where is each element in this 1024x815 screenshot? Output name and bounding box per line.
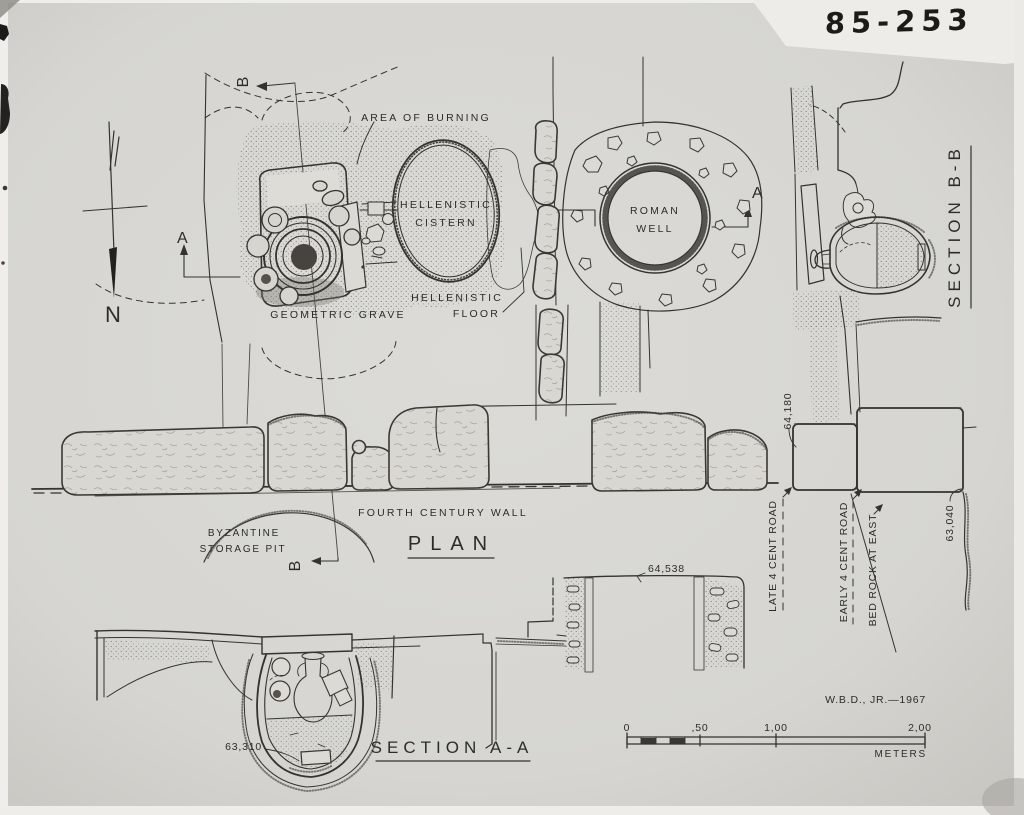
pit-label-1: BYZANTINE [208, 528, 280, 539]
aa-elevation-base: 63,310 [225, 741, 262, 753]
svg-text:B: B [235, 77, 252, 88]
paper [8, 3, 1016, 806]
north-label: N [105, 302, 121, 327]
scale-tick-100: 1,00 [764, 722, 788, 734]
bb-early-road-label: EARLY 4 CENT ROAD [838, 502, 850, 622]
film-speck [1, 261, 5, 265]
archaeological-drawing-photo: 85-253 N [0, 0, 1024, 815]
right-margin [1014, 0, 1024, 815]
scale-unit: METERS [875, 749, 927, 760]
cistern-label-1: HELLENISTIC [400, 199, 492, 211]
bb-earth-band [808, 300, 840, 423]
scale-tick-200: 2,00 [908, 722, 932, 734]
bb-elevation-bedrock: 63,040 [944, 505, 956, 542]
film-speck [3, 186, 8, 191]
svg-text:B: B [287, 561, 304, 572]
floor-label-1: HELLENISTIC [411, 292, 503, 304]
svg-text:SECTION B-B: SECTION B-B [945, 144, 964, 308]
area-of-burning-label: AREA OF BURNING [361, 112, 491, 124]
floor-label-2: FLOOR [453, 308, 500, 320]
aa-elevation-well: 64,538 [648, 563, 685, 575]
bottom-margin [0, 807, 1024, 815]
well-label-1: ROMAN [630, 205, 680, 217]
drawing-canvas: 85-253 N [0, 0, 1024, 815]
grave-label: GEOMETRIC GRAVE [270, 309, 405, 321]
svg-text:SECTION A-A: SECTION A-A [371, 738, 534, 757]
well-label-2: WELL [636, 223, 673, 235]
bb-elevation-road: 64,180 [782, 393, 794, 430]
svg-text:PLAN: PLAN [408, 533, 496, 555]
cistern-label-2: CISTERN [415, 217, 477, 229]
credit: W.B.D., JR.—1967 [825, 694, 926, 706]
scale-tick-50: ,50 [692, 722, 709, 734]
plan-title: PLAN [408, 533, 496, 558]
bb-bedrock-label: BED ROCK AT EAST [867, 514, 879, 627]
section-marker-a-left: A [177, 230, 188, 247]
pit-label-2: STORAGE PIT [200, 544, 287, 555]
bb-late-road-label: LATE 4 CENT ROAD [767, 500, 779, 612]
scale-tick-0: 0 [624, 722, 631, 734]
wall-label: FOURTH CENTURY WALL [358, 507, 528, 519]
catalog-number: 85-253 [824, 3, 974, 41]
